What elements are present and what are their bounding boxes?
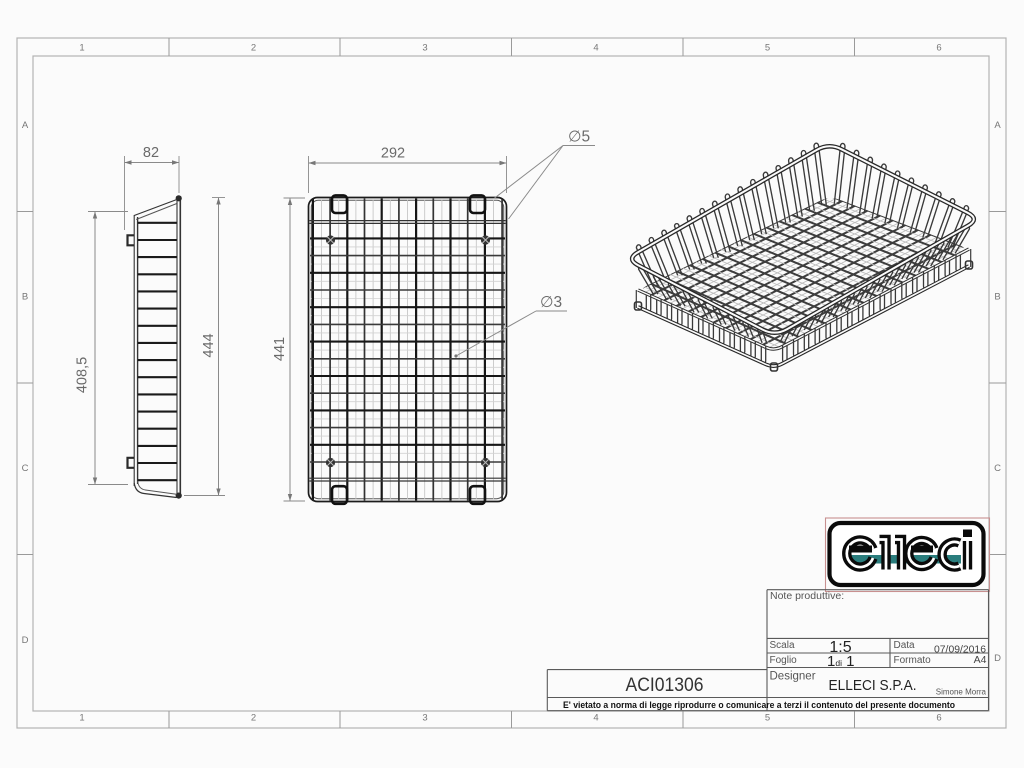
svg-text:1: 1 <box>79 43 84 54</box>
svg-text:82: 82 <box>143 145 159 161</box>
svg-text:C: C <box>994 463 1001 474</box>
svg-text:A4: A4 <box>974 654 987 666</box>
svg-text:ACI01306: ACI01306 <box>626 674 704 696</box>
svg-text:3: 3 <box>422 713 427 724</box>
svg-text:Foglio: Foglio <box>770 655 798 666</box>
svg-text:5: 5 <box>765 713 770 724</box>
svg-text:408,5: 408,5 <box>75 357 91 393</box>
svg-text:E' vietato a norma di legge ri: E' vietato a norma di legge riprodurre o… <box>563 700 955 711</box>
svg-text:D: D <box>22 635 29 646</box>
svg-text:Note produttive:: Note produttive: <box>770 590 844 602</box>
svg-text:A: A <box>22 120 29 131</box>
svg-text:2: 2 <box>251 713 256 724</box>
svg-text:Simone Morra: Simone Morra <box>936 688 987 697</box>
svg-text:6: 6 <box>936 713 941 724</box>
svg-text:441: 441 <box>272 337 288 361</box>
svg-text:B: B <box>994 292 1000 303</box>
svg-text:444: 444 <box>201 333 217 357</box>
svg-text:ELLECI S.P.A.: ELLECI S.P.A. <box>829 677 917 694</box>
svg-text:A: A <box>994 120 1001 131</box>
svg-text:5: 5 <box>765 43 770 54</box>
svg-text:292: 292 <box>381 146 405 162</box>
svg-text:∅3: ∅3 <box>540 294 562 311</box>
svg-text:Scala: Scala <box>770 640 795 651</box>
svg-text:6: 6 <box>936 43 941 54</box>
svg-text:Designer: Designer <box>770 671 816 683</box>
svg-text:∅5: ∅5 <box>568 129 590 146</box>
svg-text:4: 4 <box>593 713 598 724</box>
svg-text:C: C <box>22 463 29 474</box>
svg-text:D: D <box>994 653 1001 664</box>
svg-text:B: B <box>22 292 28 303</box>
svg-text:2: 2 <box>251 43 256 54</box>
svg-text:1: 1 <box>79 713 84 724</box>
svg-text:3: 3 <box>422 43 427 54</box>
svg-text:4: 4 <box>593 43 598 54</box>
svg-text:Formato: Formato <box>894 655 932 666</box>
svg-text:Data: Data <box>894 640 916 651</box>
